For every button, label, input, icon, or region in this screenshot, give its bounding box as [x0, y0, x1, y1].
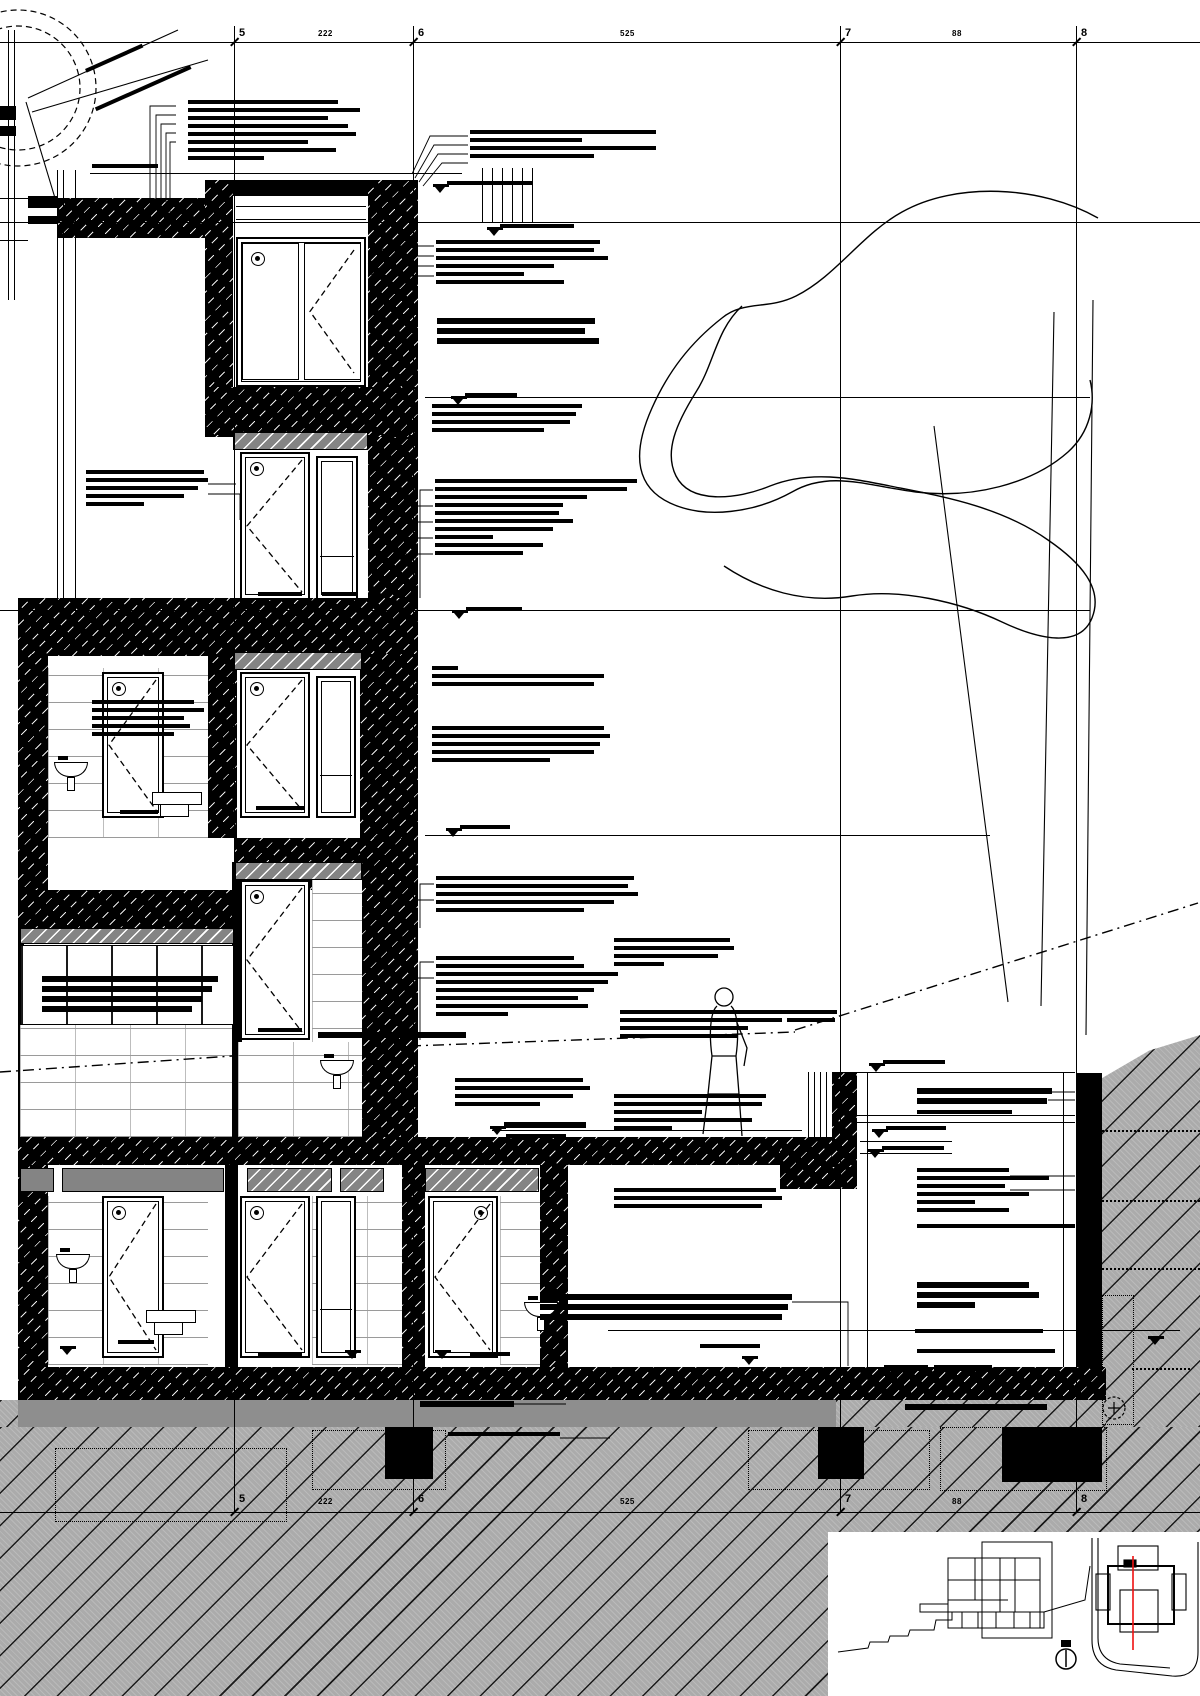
key-plan-inset: [828, 1532, 1200, 1696]
transom-glazing-band: [247, 1168, 332, 1192]
toilet-fixture-icon: [146, 1310, 202, 1346]
excavation-outline: [312, 1430, 446, 1490]
spot-level-marker: [435, 1350, 451, 1353]
annotation-block: [188, 100, 360, 164]
annotation-block: [882, 1146, 944, 1154]
annotation-text-line: [883, 1060, 945, 1064]
annotation-text-line: [95, 65, 192, 111]
annotation-text-line: [435, 479, 637, 483]
drawing-line: [814, 1072, 815, 1137]
annotation-block: [905, 1404, 1047, 1414]
basin-bowl: [54, 762, 88, 777]
level-reference-line: [425, 835, 990, 836]
annotation-text-line: [917, 1349, 1055, 1353]
annotation-text-line: [188, 148, 336, 152]
annotation-text-line: [917, 1282, 1029, 1288]
annotation-text-line: [188, 132, 356, 136]
grid-line: [234, 26, 235, 1512]
drawing-line: [0, 1512, 1200, 1513]
annotation-text-line: [437, 338, 599, 344]
spot-level-marker: [345, 1350, 361, 1353]
annotation-text-line: [917, 1184, 1005, 1188]
annotation-text-line: [620, 1010, 788, 1014]
drawing-line: [867, 1072, 868, 1367]
annotation-block: [614, 1188, 782, 1212]
annotation-text-line: [917, 1088, 1052, 1094]
drawing-line: [8, 30, 9, 300]
spot-level-marker: [1148, 1336, 1164, 1339]
annotation-text-line: [92, 724, 190, 728]
drawing-line: [532, 168, 533, 222]
transom-glazing-band: [235, 862, 362, 880]
leaf-swing-line: [242, 882, 308, 1038]
drawing-line: [608, 1330, 1180, 1331]
annotation-block: [460, 825, 510, 833]
annotation-block: [437, 318, 599, 348]
annotation-text-line: [432, 758, 550, 762]
annotation-block: [465, 393, 517, 401]
annotation-block: [256, 806, 304, 814]
grid-line: [413, 26, 414, 1512]
annotation-block: [886, 1126, 946, 1134]
spot-level-marker: [60, 1346, 76, 1349]
annotation-text-line: [436, 240, 600, 244]
annotation-text-line: [436, 248, 594, 252]
annotation-text-line: [620, 1018, 782, 1022]
grid-column-label: 6: [418, 28, 424, 39]
annotation-text-line: [432, 420, 570, 424]
annotation-text-line: [322, 592, 356, 596]
drawing-line: [826, 1072, 827, 1137]
glazing-division-line: [320, 556, 354, 557]
annotation-text-line: [884, 1365, 928, 1371]
annotation-text-line: [436, 988, 594, 992]
annotation-text-line: [432, 666, 458, 670]
annotation-block: [500, 224, 574, 232]
annotation-text-line: [620, 1026, 748, 1030]
wall-section-poche: [18, 1137, 810, 1165]
drawing-line: [857, 1122, 1075, 1123]
annotation-text-line: [470, 138, 582, 142]
annotation-block: [436, 876, 638, 916]
door-unit: [240, 880, 310, 1040]
annotation-text-line: [432, 682, 594, 686]
spot-level-marker: [742, 1356, 758, 1359]
annotation-text-line: [787, 1018, 835, 1022]
annotation-text-line: [432, 726, 604, 730]
annotation-text-line: [188, 124, 348, 128]
annotation-text-line: [436, 996, 578, 1000]
drawing-line: [860, 1141, 952, 1142]
annotation-block: [95, 65, 193, 115]
annotation-text-line: [436, 900, 614, 904]
window-unit: [316, 456, 358, 600]
annotation-block: [917, 1110, 1012, 1118]
drawing-line: [512, 168, 513, 222]
annotation-text-line: [917, 1168, 1009, 1172]
annotation-text-line: [258, 1352, 302, 1356]
annotation-text-line: [258, 592, 302, 596]
leaf-swing-line: [305, 244, 360, 379]
annotation-text-line: [506, 1134, 566, 1138]
annotation-block: [322, 592, 356, 600]
annotation-text-line: [465, 393, 517, 397]
wall-section-poche: [832, 1072, 857, 1167]
level-reference-line: [425, 397, 1090, 398]
annotation-text-line: [432, 674, 604, 678]
annotation-text-line: [92, 732, 174, 736]
annotation-block: [436, 240, 608, 288]
transom-glazing-band: [233, 652, 362, 670]
excavation-outline: [1102, 1295, 1134, 1425]
basin-tap: [528, 1296, 538, 1300]
annotation-block: [436, 956, 618, 1020]
annotation-block: [506, 1134, 566, 1142]
toilet-fixture-icon: [152, 792, 208, 828]
annotation-text-line: [436, 272, 524, 276]
annotation-text-line: [436, 1012, 508, 1016]
opening-tag-bubble: [250, 1206, 264, 1220]
annotation-text-line: [436, 956, 574, 960]
opening-tag-bubble: [250, 462, 264, 476]
basin-bowl: [320, 1060, 354, 1075]
annotation-text-line: [917, 1110, 1012, 1114]
drawing-line: [482, 168, 483, 222]
annotation-text-line: [886, 1126, 946, 1130]
leaf-swing-line: [242, 674, 308, 816]
dimension-text: 525: [620, 30, 635, 38]
annotation-text-line: [436, 264, 554, 268]
door-unit: [428, 1196, 498, 1358]
blockwork-wall: [500, 1196, 540, 1365]
annotation-text-line: [455, 1086, 590, 1090]
washbasin-fixture-icon: [56, 1248, 112, 1284]
door-unit: [240, 452, 310, 600]
opening-tag-bubble: [112, 1206, 126, 1220]
annotation-text-line: [188, 116, 328, 120]
drawing-line: [236, 206, 366, 207]
basin-tap: [324, 1054, 334, 1058]
annotation-text-line: [470, 146, 656, 150]
annotation-text-line: [614, 954, 718, 958]
annotation-block: [917, 1224, 1075, 1232]
glazing-division-line: [320, 1309, 352, 1310]
annotation-text-line: [92, 716, 184, 720]
annotation-block: [470, 1352, 510, 1360]
annotation-text-line: [614, 938, 730, 942]
drawing-line: [502, 168, 503, 222]
wall-section-poche: [57, 198, 205, 238]
annotation-text-line: [437, 318, 595, 324]
basin-bowl: [56, 1254, 90, 1269]
annotation-block: [85, 44, 145, 77]
grid-column-label: 5: [239, 1494, 245, 1505]
annotation-text-line: [917, 1192, 1029, 1196]
door-unit: [240, 672, 310, 818]
grid-column-label: 6: [418, 1494, 424, 1505]
leaf-swing-line: [242, 1198, 308, 1356]
annotation-text-line: [470, 154, 594, 158]
drawing-line: [0, 42, 1200, 43]
annotation-block: [420, 1401, 514, 1411]
annotation-block: [915, 1329, 1043, 1337]
annotation-block: [258, 592, 302, 600]
annotation-block: [455, 1078, 590, 1110]
tree-branch-lines: [934, 300, 1093, 1035]
annotation-text-line: [432, 750, 594, 754]
annotation-block: [917, 1349, 1055, 1357]
drawing-line: [57, 170, 58, 612]
annotation-text-line: [435, 551, 523, 555]
level-reference-line: [0, 222, 1200, 223]
annotation-text-line: [42, 1006, 192, 1012]
annotation-text-line: [188, 108, 360, 112]
annotation-text-line: [436, 980, 608, 984]
wall-section-poche: [1076, 1073, 1102, 1367]
annotation-text-line: [917, 1302, 975, 1308]
leaf-swing-line: [430, 1198, 496, 1356]
opening-frame: [321, 1201, 351, 1353]
annotation-block: [470, 130, 656, 162]
wall-section-poche: [18, 890, 238, 928]
annotation-text-line: [42, 976, 218, 982]
annotation-text-line: [917, 1200, 975, 1204]
annotation-text-line: [188, 140, 308, 144]
grid-line: [840, 26, 841, 1512]
annotation-text-line: [436, 972, 618, 976]
annotation-text-line: [436, 1004, 588, 1008]
annotation-text-line: [318, 1032, 466, 1038]
basin-tap: [58, 756, 68, 760]
annotation-block: [435, 479, 637, 559]
annotation-text-line: [447, 181, 533, 185]
annotation-text-line: [905, 1404, 1047, 1410]
opening-tag-bubble: [250, 890, 264, 904]
annotation-block: [42, 976, 218, 1016]
washbasin-fixture-icon: [54, 756, 110, 792]
window-unit: [236, 237, 366, 387]
annotation-block: [447, 181, 533, 189]
drawing-line: [808, 1072, 809, 1137]
annotation-text-line: [432, 404, 582, 408]
wall-section-poche: [18, 1165, 48, 1367]
annotation-text-line: [436, 280, 564, 284]
annotation-text-line: [614, 1094, 766, 1098]
annotation-text-line: [432, 734, 610, 738]
annotation-block: [432, 726, 610, 766]
transom-glazing-band: [20, 1168, 54, 1192]
annotation-text-line: [540, 1314, 782, 1320]
annotation-block: [258, 1028, 302, 1036]
washbasin-fixture-icon: [320, 1054, 376, 1090]
annotation-text-line: [435, 535, 493, 539]
annotation-text-line: [92, 708, 204, 712]
annotation-text-line: [455, 1078, 583, 1082]
annotation-text-line: [700, 1344, 760, 1348]
annotation-text-line: [435, 527, 553, 531]
annotation-text-line: [614, 1196, 782, 1200]
annotation-text-line: [86, 470, 204, 474]
wc-bowl: [160, 804, 189, 817]
opening-tag-bubble: [250, 682, 264, 696]
transom-glazing-band: [340, 1168, 384, 1192]
annotation-text-line: [86, 486, 198, 490]
annotation-text-line: [437, 328, 585, 334]
transom-glazing-band: [233, 432, 368, 450]
dotted-earth-line: [1102, 1130, 1200, 1132]
drawing-line: [63, 170, 64, 612]
wall-section-poche: [205, 387, 418, 435]
transom-glazing-band: [425, 1168, 539, 1192]
blockwork-wall: [20, 1023, 232, 1137]
drawing-line: [90, 173, 462, 174]
annotation-text-line: [614, 1110, 702, 1114]
annotation-text-line: [917, 1208, 1009, 1212]
basin-stand: [67, 777, 75, 791]
excavation-outline: [55, 1448, 287, 1522]
annotation-text-line: [86, 478, 208, 482]
drawing-line: [75, 170, 76, 612]
annotation-text-line: [436, 256, 608, 260]
annotation-text-line: [435, 511, 559, 515]
annotation-text-line: [614, 1126, 672, 1130]
level-reference-line: [0, 610, 1090, 611]
annotation-text-line: [258, 1028, 302, 1032]
tree-outline: [640, 191, 1098, 638]
window-unit: [316, 1196, 356, 1358]
annotation-text-line: [436, 876, 634, 880]
wall-section-poche: [540, 1165, 568, 1367]
wall-section-poche: [225, 1165, 238, 1367]
earth-hatch: [0, 1400, 18, 1427]
annotation-block: [258, 1352, 302, 1360]
annotation-block: [917, 1282, 1039, 1312]
annotation-block: [700, 1344, 760, 1352]
annotation-text-line: [42, 996, 202, 1002]
door-unit: [240, 1196, 310, 1358]
grid-line: [1076, 26, 1077, 1512]
drawing-sheet: 556677882225258822252588: [0, 0, 1200, 1696]
dimension-text: 222: [318, 1498, 333, 1506]
annotation-block: [504, 1122, 586, 1132]
annotation-text-line: [435, 543, 543, 547]
annotation-text-line: [448, 1432, 560, 1436]
annotation-text-line: [917, 1292, 1039, 1298]
annotation-text-line: [917, 1176, 1049, 1180]
wall-section-poche: [18, 654, 48, 890]
annotation-text-line: [188, 100, 338, 104]
annotation-block: [934, 1365, 992, 1375]
basin-tap: [60, 1248, 70, 1252]
casement-pane: [304, 243, 361, 380]
annotation-text-line: [420, 1401, 514, 1407]
annotation-text-line: [455, 1094, 573, 1098]
opening-tag-bubble: [474, 1206, 488, 1220]
annotation-block: [432, 666, 604, 690]
annotation-text-line: [466, 607, 522, 611]
annotation-block: [614, 1094, 766, 1134]
drawing-line: [820, 1072, 821, 1137]
dimension-text: 222: [318, 30, 333, 38]
annotation-text-line: [787, 1010, 837, 1014]
basin-stand: [333, 1075, 341, 1089]
annotation-text-line: [436, 908, 584, 912]
grid-column-label: 8: [1081, 28, 1087, 39]
annotation-text-line: [500, 224, 574, 228]
wc-bowl: [154, 1322, 183, 1335]
annotation-text-line: [504, 1122, 586, 1128]
wall-section-poche: [360, 838, 418, 1137]
drawing-line: [1063, 1072, 1064, 1367]
fixed-pane: [242, 243, 299, 380]
annotation-text-line: [915, 1329, 1043, 1333]
annotation-block: [466, 607, 522, 615]
excavation-outline: [940, 1427, 1107, 1491]
annotation-text-line: [614, 1188, 776, 1192]
glazing-division-line: [320, 775, 352, 776]
annotation-text-line: [436, 884, 628, 888]
basin-stand: [69, 1269, 77, 1283]
annotation-text-line: [432, 428, 544, 432]
annotation-text-line: [435, 487, 627, 491]
opening-tag-bubble: [112, 682, 126, 696]
annotation-text-line: [42, 986, 212, 992]
wall-section-poche: [360, 654, 418, 838]
drawing-line: [522, 168, 523, 222]
opening-frame: [321, 681, 351, 813]
annotation-block: [432, 404, 582, 436]
annotation-block: [917, 1168, 1049, 1216]
annotation-block: [884, 1365, 928, 1375]
dimension-text: 525: [620, 1498, 635, 1506]
annotation-text-line: [917, 1098, 1047, 1104]
annotation-block: [86, 470, 208, 510]
wall-section-poche: [368, 437, 418, 612]
annotation-text-line: [120, 810, 158, 814]
annotation-text-line: [540, 1294, 792, 1300]
wall-section-poche: [208, 654, 237, 838]
annotation-text-line: [256, 806, 304, 810]
annotation-text-line: [614, 946, 734, 950]
annotation-text-line: [86, 494, 184, 498]
annotation-text-line: [435, 503, 563, 507]
annotation-text-line: [470, 1352, 510, 1356]
grid-column-label: 7: [845, 28, 851, 39]
opening-frame: [321, 461, 353, 595]
annotation-text-line: [614, 1102, 762, 1106]
annotation-text-line: [188, 156, 264, 160]
grid-column-label: 5: [239, 28, 245, 39]
annotation-block: [620, 1010, 788, 1042]
wall-section-poche: [18, 598, 418, 656]
annotation-text-line: [614, 962, 664, 966]
annotation-text-line: [85, 44, 143, 73]
annotation-block: [917, 1088, 1052, 1108]
annotation-block: [118, 1340, 154, 1348]
annotation-block: [540, 1294, 792, 1324]
annotation-block: [787, 1010, 837, 1026]
transom-glazing-band: [20, 928, 234, 944]
annotation-text-line: [432, 742, 600, 746]
annotation-block: [92, 700, 204, 740]
annotation-text-line: [917, 1224, 1075, 1228]
annotation-text-line: [432, 412, 576, 416]
annotation-text-line: [92, 164, 158, 168]
annotation-text-line: [435, 495, 587, 499]
window-unit: [316, 676, 356, 818]
annotation-block: [614, 938, 734, 970]
drawing-line: [857, 1072, 1075, 1073]
